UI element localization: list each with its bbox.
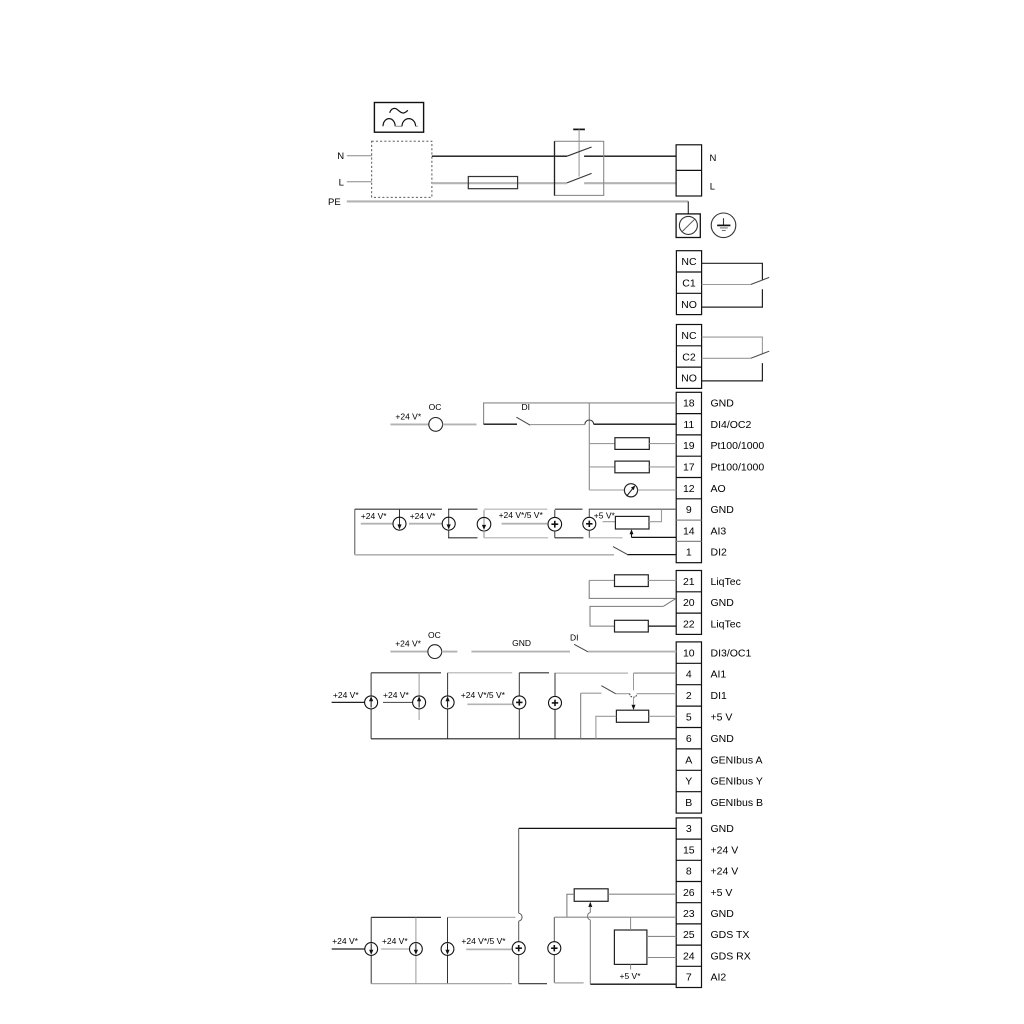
svg-text:NO: NO: [681, 299, 697, 311]
svg-text:20: 20: [683, 597, 695, 609]
svg-text:GND: GND: [711, 597, 735, 609]
svg-text:+24 V*: +24 V*: [382, 936, 408, 946]
svg-text:GENIbus A: GENIbus A: [711, 754, 763, 766]
svg-text:DI: DI: [570, 633, 579, 643]
svg-text:GND: GND: [711, 504, 735, 516]
svg-text:10: 10: [683, 647, 695, 659]
svg-text:+24 V: +24 V: [711, 866, 739, 878]
svg-text:9: 9: [686, 504, 692, 516]
svg-text:AI3: AI3: [711, 525, 727, 537]
svg-text:N: N: [337, 151, 344, 162]
svg-text:+24 V*/5 V*: +24 V*/5 V*: [499, 510, 544, 520]
svg-text:AI2: AI2: [711, 972, 727, 984]
svg-text:11: 11: [683, 419, 694, 431]
svg-text:1: 1: [686, 547, 692, 559]
svg-text:+24 V: +24 V: [711, 844, 739, 856]
svg-text:C1: C1: [682, 278, 696, 290]
svg-text:GDS RX: GDS RX: [711, 950, 751, 962]
svg-text:DI1: DI1: [711, 690, 728, 702]
svg-text:+24 V*: +24 V*: [333, 690, 359, 700]
svg-text:L: L: [339, 177, 344, 188]
svg-text:12: 12: [683, 483, 695, 495]
svg-text:NC: NC: [681, 330, 697, 342]
svg-text:18: 18: [683, 398, 695, 410]
svg-text:25: 25: [683, 929, 695, 941]
svg-text:+5 V*: +5 V*: [594, 510, 616, 520]
svg-text:19: 19: [683, 440, 695, 452]
svg-text:NC: NC: [681, 256, 697, 268]
svg-text:4: 4: [686, 669, 692, 681]
svg-text:AI1: AI1: [711, 669, 727, 681]
svg-text:DI4/OC2: DI4/OC2: [711, 419, 752, 431]
svg-text:OC: OC: [428, 630, 441, 640]
svg-text:+24 V*: +24 V*: [410, 511, 436, 521]
svg-text:LiqTec: LiqTec: [711, 576, 741, 588]
svg-text:A: A: [685, 754, 692, 766]
svg-text:DI3/OC1: DI3/OC1: [711, 647, 752, 659]
svg-text:C2: C2: [682, 351, 696, 363]
svg-text:DI2: DI2: [711, 547, 728, 559]
svg-text:+24 V*: +24 V*: [395, 411, 421, 421]
svg-text:+5 V: +5 V: [711, 712, 733, 724]
svg-text:22: 22: [683, 619, 695, 631]
svg-text:21: 21: [683, 576, 695, 588]
svg-text:GND: GND: [711, 733, 735, 745]
svg-text:LiqTec: LiqTec: [711, 619, 741, 631]
svg-text:GND: GND: [711, 398, 735, 410]
svg-text:26: 26: [683, 887, 695, 899]
svg-text:+24 V*: +24 V*: [361, 511, 387, 521]
svg-text:Y: Y: [685, 776, 692, 788]
svg-text:GENIbus B: GENIbus B: [711, 797, 764, 809]
svg-text:8: 8: [686, 866, 692, 878]
svg-text:GND: GND: [711, 908, 735, 920]
svg-text:24: 24: [683, 950, 695, 962]
svg-text:DI: DI: [522, 402, 531, 412]
svg-text:6: 6: [686, 733, 692, 745]
svg-text:GENIbus Y: GENIbus Y: [711, 776, 763, 788]
svg-text:2: 2: [686, 690, 692, 702]
svg-text:B: B: [685, 797, 692, 809]
svg-text:+5 V: +5 V: [711, 887, 733, 899]
svg-text:17: 17: [683, 462, 695, 474]
svg-text:NO: NO: [681, 373, 697, 385]
svg-text:5: 5: [686, 712, 692, 724]
svg-text:+24 V*/5 V*: +24 V*/5 V*: [461, 936, 506, 946]
svg-text:15: 15: [683, 844, 695, 856]
svg-text:PE: PE: [328, 197, 341, 208]
svg-text:GND: GND: [711, 823, 735, 835]
svg-text:GDS TX: GDS TX: [711, 929, 750, 941]
svg-text:+24 V*: +24 V*: [332, 936, 358, 946]
svg-text:23: 23: [683, 908, 695, 920]
svg-text:14: 14: [683, 525, 695, 537]
svg-text:GND: GND: [512, 638, 531, 648]
svg-text:L: L: [710, 182, 715, 193]
svg-text:Pt100/1000: Pt100/1000: [711, 462, 765, 474]
svg-text:7: 7: [686, 972, 692, 984]
svg-text:AO: AO: [711, 483, 726, 495]
svg-text:OC: OC: [429, 402, 442, 412]
svg-text:+24 V*: +24 V*: [383, 690, 409, 700]
svg-text:+24 V*/5 V*: +24 V*/5 V*: [461, 690, 506, 700]
svg-text:Pt100/1000: Pt100/1000: [711, 440, 765, 452]
svg-text:+5 V*: +5 V*: [620, 971, 642, 981]
svg-text:N: N: [710, 153, 717, 164]
svg-text:3: 3: [686, 823, 692, 835]
svg-text:+24 V*: +24 V*: [395, 638, 421, 648]
